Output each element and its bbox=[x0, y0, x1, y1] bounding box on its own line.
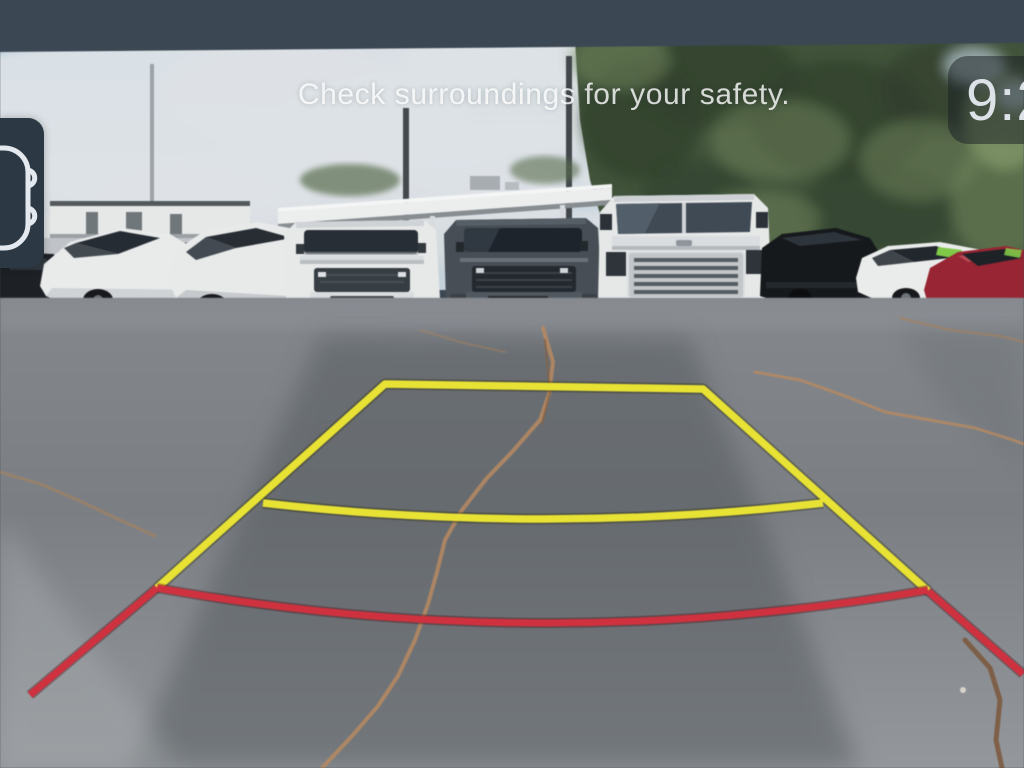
safety-warning-text: Check surroundings for your safety. bbox=[0, 78, 1024, 112]
car-top-view-icon bbox=[0, 118, 44, 268]
camera-view-button[interactable] bbox=[0, 118, 44, 268]
letterbox-band bbox=[0, 0, 1024, 52]
rear-camera-screen: Check surroundings for your safety. 9:2 bbox=[0, 0, 1024, 768]
clock-display: 9:2 bbox=[948, 56, 1024, 144]
clock-time: 9:2 bbox=[966, 67, 1024, 134]
rear-camera-feed bbox=[0, 0, 1024, 768]
